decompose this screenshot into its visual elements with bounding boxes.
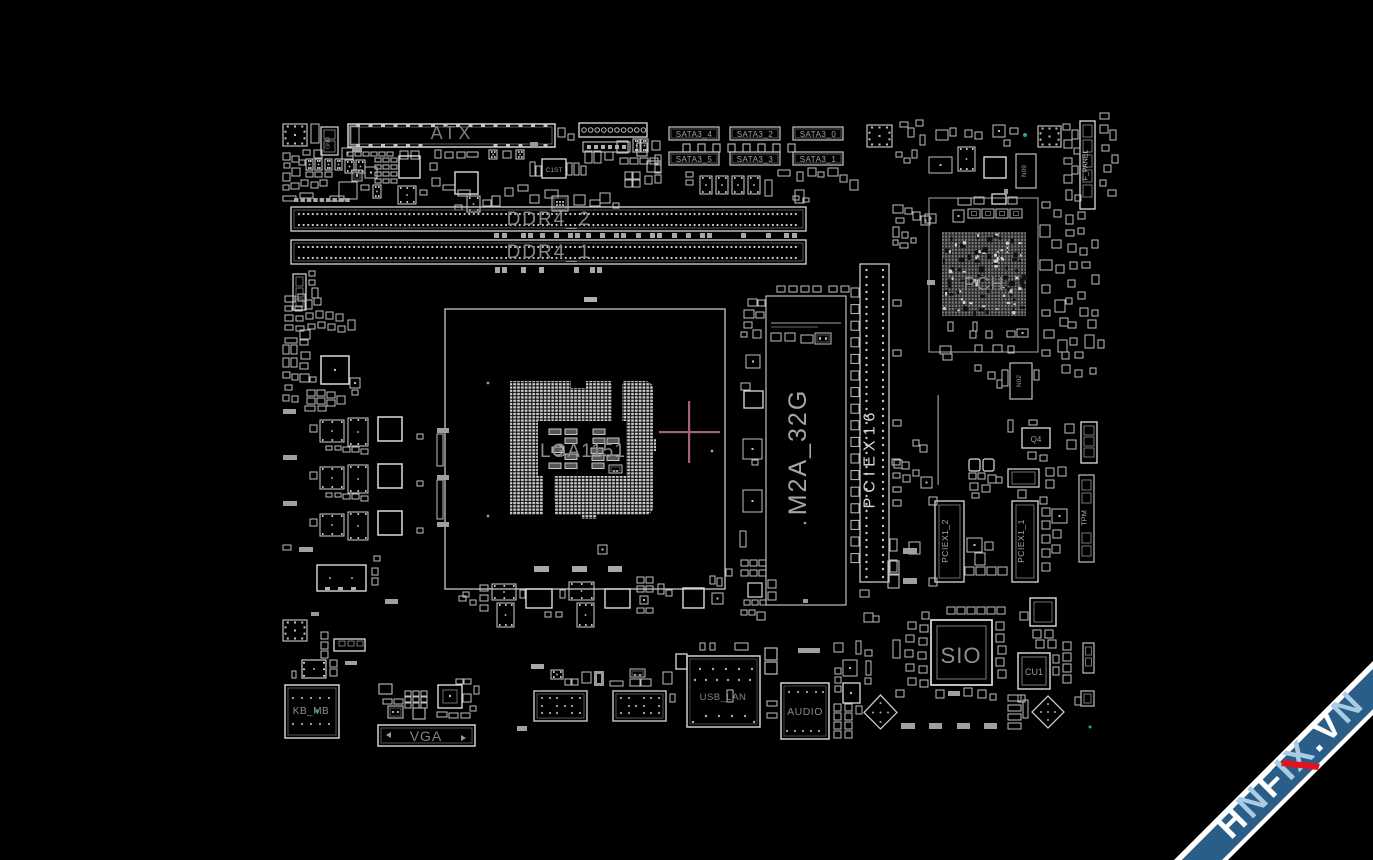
svg-text:PCIEX16: PCIEX16 [862,408,879,509]
svg-text:PCIEX1_2: PCIEX1_2 [940,519,950,563]
svg-text:CU1: CU1 [1025,667,1043,677]
svg-text:SATA3_3: SATA3_3 [737,155,774,164]
svg-text:USB_LAN: USB_LAN [700,692,747,703]
svg-text:PCIEX1_1: PCIEX1_1 [1016,519,1026,563]
svg-text:C1ST: C1ST [546,167,563,174]
svg-text:VGA: VGA [410,728,443,744]
svg-text:LGA1151: LGA1151 [540,441,626,462]
svg-text:DDR4_2: DDR4_2 [507,209,592,230]
svg-text:SATA3_1: SATA3_1 [800,155,837,164]
svg-text:ATX: ATX [431,123,474,143]
svg-text:TPM: TPM [1080,510,1089,526]
svg-text:SATA3_0: SATA3_0 [800,130,837,139]
svg-text:PCH: PCH [963,274,1004,294]
svg-text:SIO: SIO [941,643,982,668]
svg-text:M2A_32G: M2A_32G [784,389,812,516]
svg-text:N09: N09 [1021,165,1028,177]
svg-text:SATA3_2: SATA3_2 [737,130,774,139]
svg-text:GND: GND [326,137,332,149]
svg-text:KB_MB: KB_MB [293,706,329,717]
svg-text:DDR4_1: DDR4_1 [507,242,592,263]
svg-text:F_PANEL: F_PANEL [1083,150,1090,181]
svg-text:Q4: Q4 [1031,435,1042,444]
svg-text:SATA3_4: SATA3_4 [676,130,713,139]
svg-text:SATA3_5: SATA3_5 [676,155,713,164]
svg-text:N02: N02 [1016,375,1023,387]
svg-text:AUDIO: AUDIO [787,706,823,718]
